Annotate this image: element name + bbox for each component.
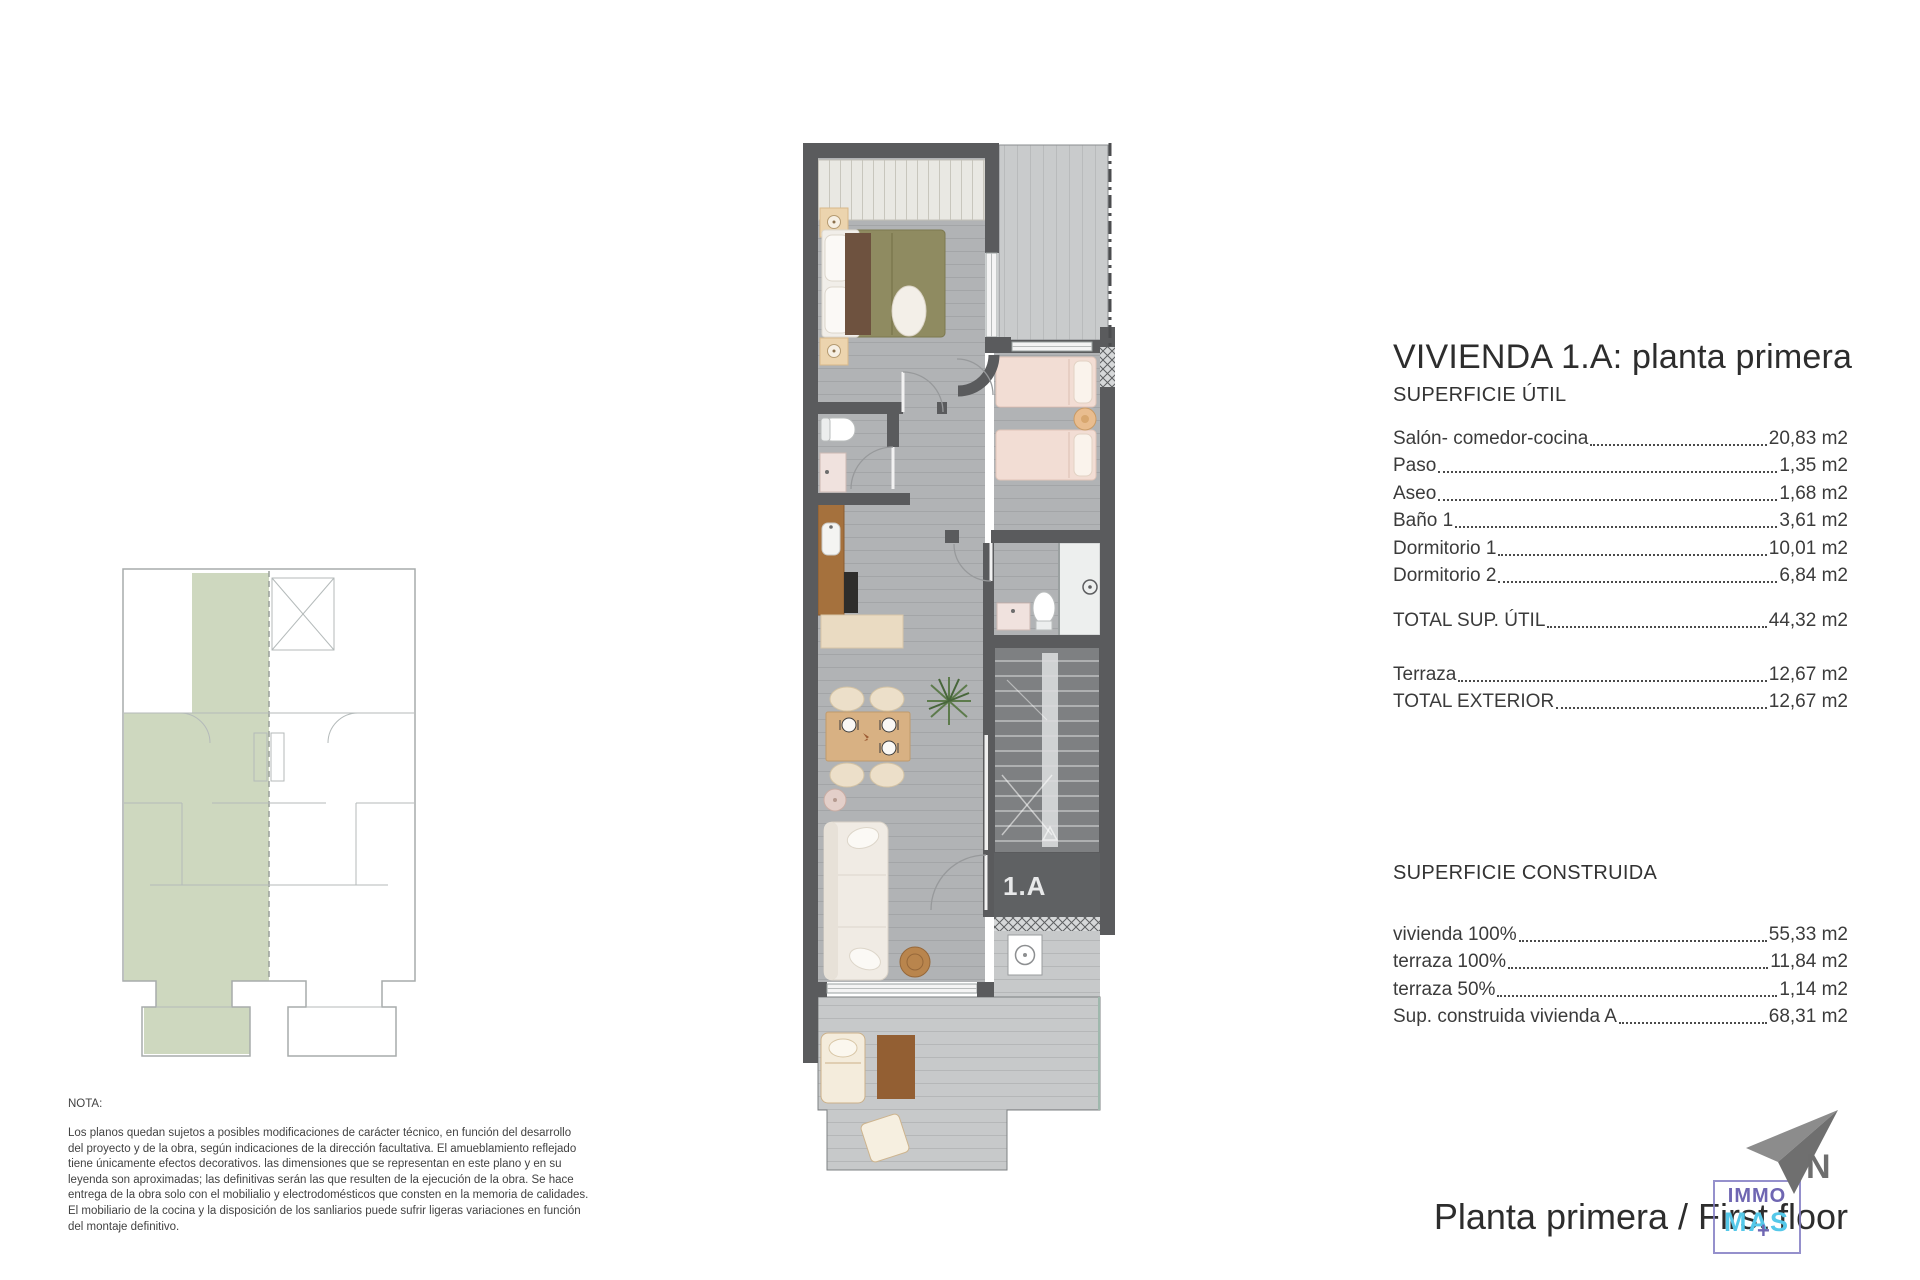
- superficie-construida-heading: SUPERFICIE CONSTRUIDA: [1393, 862, 1657, 885]
- kitchen-peninsula: [821, 615, 903, 648]
- cooktop: [844, 572, 858, 613]
- leader-dots: [1458, 680, 1766, 682]
- bed-pillow: [1074, 434, 1092, 476]
- leader-dots: [1590, 444, 1766, 446]
- dining-chair: [870, 763, 904, 787]
- sink: [997, 603, 1030, 630]
- area-row: Dormitorio 1 10,01 m2: [1393, 532, 1848, 560]
- area-row: Aseo 1,68 m2: [1393, 477, 1848, 505]
- area-row: TOTAL SUP. ÚTIL 44,32 m2: [1393, 604, 1848, 632]
- area-row: terraza 100% 11,84 m2: [1393, 946, 1848, 974]
- leader-dots: [1498, 554, 1766, 556]
- outdoor-mat: [877, 1035, 915, 1099]
- bed-throw: [845, 233, 871, 335]
- main-floor-plan: 1.A: [797, 135, 1129, 1175]
- area-value: 6,84 m2: [1779, 565, 1848, 587]
- area-label: Terraza: [1393, 664, 1456, 686]
- area-row: Terraza 12,67 m2: [1393, 658, 1848, 686]
- nota-line: El mobiliario de la cocina y la disposic…: [68, 1204, 628, 1220]
- key-plan: [120, 562, 418, 1060]
- toilet: [1033, 592, 1055, 624]
- area-value: 20,83 m2: [1769, 428, 1848, 450]
- kitchen-counter: [818, 503, 844, 615]
- leader-dots: [1519, 940, 1767, 942]
- area-row: TOTAL EXTERIOR 12,67 m2: [1393, 686, 1848, 714]
- area-label: vivienda 100%: [1393, 924, 1517, 946]
- leader-dots: [1498, 581, 1777, 583]
- leader-dots: [1547, 626, 1766, 628]
- area-value: 3,61 m2: [1779, 510, 1848, 532]
- floor-plan-drawing: 1.A: [797, 135, 1129, 1175]
- logo-plus-icon: +: [1757, 1218, 1770, 1244]
- area-label: Dormitorio 2: [1393, 565, 1496, 587]
- nota-line: Los planos quedan sujetos a posibles mod…: [68, 1126, 628, 1142]
- nota-block: NOTA: Los planos quedan sujetos a posibl…: [68, 1098, 628, 1235]
- dining-chair: [830, 687, 864, 711]
- nota-line: del proyecto y de la obra, según indicac…: [68, 1142, 628, 1158]
- leader-dots: [1455, 526, 1777, 528]
- stairs-stringer: [1042, 653, 1058, 847]
- area-value: 10,01 m2: [1769, 538, 1848, 560]
- area-value: 12,67 m2: [1769, 664, 1848, 686]
- leader-dots: [1556, 707, 1767, 709]
- area-label: Baño 1: [1393, 510, 1453, 532]
- sink: [820, 453, 846, 492]
- area-label: Sup. construida vivienda A: [1393, 1006, 1617, 1028]
- leader-dots: [1438, 499, 1777, 501]
- shower: [1059, 543, 1100, 635]
- terrace-top-floor: [999, 145, 1108, 340]
- unit-label: 1.A: [1003, 871, 1046, 901]
- north-label: N: [1806, 1148, 1831, 1187]
- area-row: Baño 1 3,61 m2: [1393, 505, 1848, 533]
- area-row: terraza 50% 1,14 m2: [1393, 973, 1848, 1001]
- side-table: [900, 947, 930, 977]
- nota-line: leyenda son aproximadas; las definitivas…: [68, 1173, 628, 1189]
- area-label: terraza 50%: [1393, 979, 1495, 1001]
- leader-dots: [1508, 967, 1768, 969]
- threshold-hatch: [994, 917, 1115, 931]
- nota-line: entrega de la obra solo con el mobiliali…: [68, 1188, 628, 1204]
- bed-blanket: [892, 286, 926, 336]
- key-plan-unit-highlight: [124, 573, 269, 1054]
- key-plan-drawing: [120, 562, 418, 1060]
- superficie-construida-list: vivienda 100% 55,33 m2 terraza 100% 11,8…: [1393, 918, 1848, 1028]
- area-value: 55,33 m2: [1769, 924, 1848, 946]
- bed-pillow: [1074, 361, 1092, 403]
- area-label: Dormitorio 1: [1393, 538, 1496, 560]
- wall-section-hatch: [1100, 347, 1115, 387]
- area-label: Salón- comedor-cocina: [1393, 428, 1588, 450]
- sliding-door: [985, 735, 989, 850]
- area-label: Paso: [1393, 455, 1436, 477]
- nota-heading: NOTA:: [68, 1098, 628, 1110]
- nota-line: del montaje definitivo.: [68, 1220, 628, 1236]
- leader-dots: [1497, 995, 1777, 997]
- dining-chair: [830, 763, 864, 787]
- area-label: Aseo: [1393, 483, 1436, 505]
- nota-line: tiene únicamente efectos decorativos. la…: [68, 1157, 628, 1173]
- page-title: VIVIENDA 1.A: planta primera: [1393, 338, 1848, 377]
- area-value: 68,31 m2: [1769, 1006, 1848, 1028]
- leader-dots: [1619, 1022, 1767, 1024]
- area-row: Dormitorio 2 6,84 m2: [1393, 560, 1848, 588]
- area-value: 11,84 m2: [1770, 951, 1848, 973]
- superficie-util-heading: SUPERFICIE ÚTIL: [1393, 384, 1566, 407]
- area-row: Salón- comedor-cocina 20,83 m2: [1393, 422, 1848, 450]
- area-value: 12,67 m2: [1769, 691, 1848, 713]
- area-label: TOTAL SUP. ÚTIL: [1393, 610, 1545, 632]
- area-label: TOTAL EXTERIOR: [1393, 691, 1554, 713]
- area-row: vivienda 100% 55,33 m2: [1393, 918, 1848, 946]
- area-value: 1,35 m2: [1779, 455, 1848, 477]
- superficie-util-list: Salón- comedor-cocina 20,83 m2 Paso 1,35…: [1393, 422, 1848, 587]
- area-value: 1,68 m2: [1779, 483, 1848, 505]
- leader-dots: [1438, 471, 1777, 473]
- total-util-row: TOTAL SUP. ÚTIL 44,32 m2: [1393, 604, 1848, 632]
- area-row: Paso 1,35 m2: [1393, 450, 1848, 478]
- exterior-list: Terraza 12,67 m2 TOTAL EXTERIOR 12,67 m2: [1393, 658, 1848, 713]
- area-label: terraza 100%: [1393, 951, 1506, 973]
- area-value: 44,32 m2: [1769, 610, 1848, 632]
- area-value: 1,14 m2: [1779, 979, 1848, 1001]
- dining-chair: [870, 687, 904, 711]
- area-row: Sup. construida vivienda A 68,31 m2: [1393, 1001, 1848, 1029]
